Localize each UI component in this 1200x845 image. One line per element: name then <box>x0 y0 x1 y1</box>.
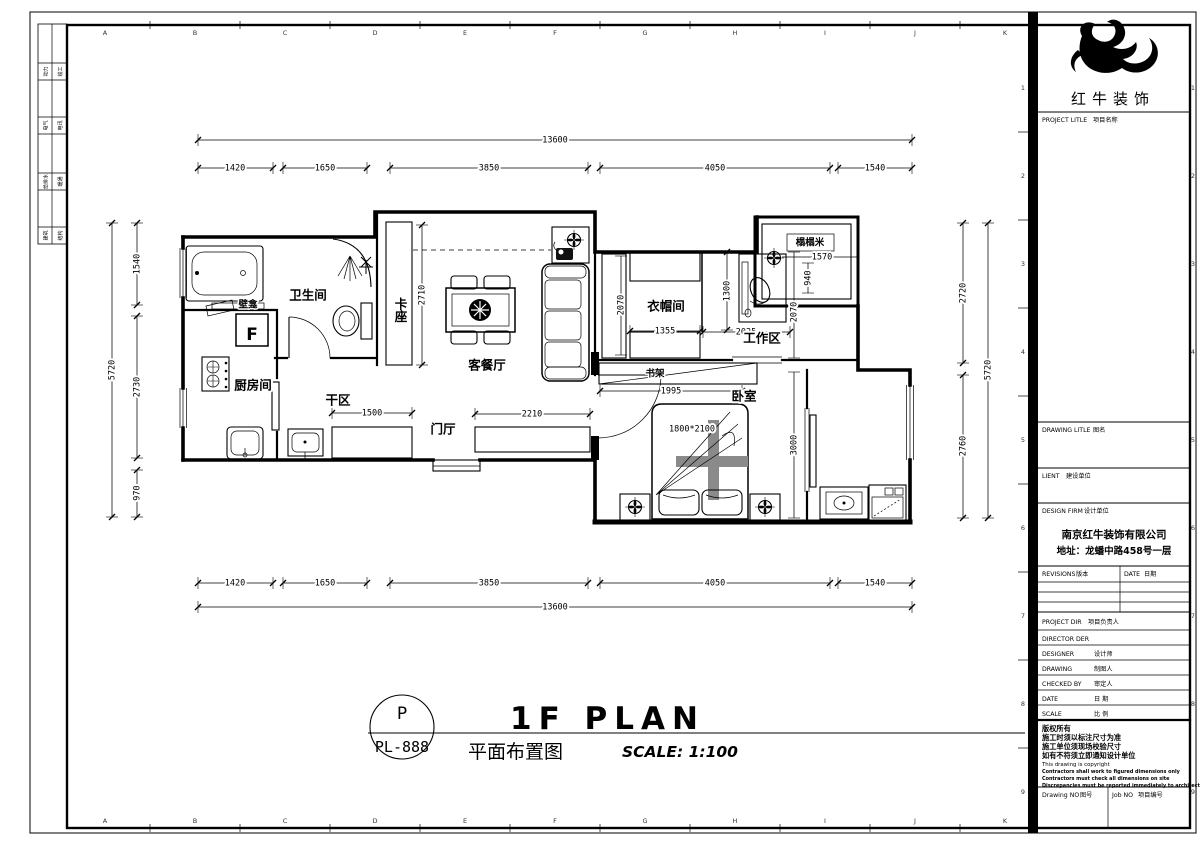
entry-threshold <box>433 460 480 471</box>
drawing-no-label-cn: 图号 <box>1080 792 1092 799</box>
svg-text:A: A <box>103 817 108 825</box>
nightstand-left <box>620 494 650 520</box>
title-bubble-code: PL-888 <box>375 738 429 756</box>
nightstand-right <box>750 494 780 520</box>
svg-text:G: G <box>642 817 647 825</box>
label-foyer: 门厅 <box>430 422 456 437</box>
svg-text:4: 4 <box>1191 348 1195 356</box>
rev-date-label: DATE <box>1124 571 1140 578</box>
av-equipment-box <box>552 227 589 263</box>
svg-text:1650: 1650 <box>315 164 335 174</box>
dim-right: 2720 2760 5720 <box>957 220 994 521</box>
svg-text:5720: 5720 <box>108 360 118 380</box>
tatami-walls <box>755 217 858 306</box>
svg-text:5: 5 <box>1021 436 1025 444</box>
svg-text:C: C <box>283 29 288 37</box>
kitchen-sink <box>227 427 263 459</box>
svg-text:D: D <box>372 29 377 37</box>
signoff-label: 给排水 <box>43 174 50 189</box>
dim-top-total: 13600 <box>195 134 915 146</box>
drawing-no-label: Drawing NO <box>1042 792 1079 799</box>
label-living-dining: 客餐厅 <box>467 358 506 373</box>
svg-text:E: E <box>463 817 467 825</box>
label-bookshelf: 书架 <box>645 368 665 380</box>
label-cloakroom: 衣帽间 <box>647 299 685 314</box>
svg-text:940: 940 <box>804 270 814 285</box>
svg-text:J: J <box>913 29 916 37</box>
director-label: DIRECTOR DER <box>1042 636 1090 643</box>
toilet <box>333 303 372 339</box>
firm-address: 地址：龙蟠中路458号一层 <box>1057 545 1172 557</box>
svg-text:2760: 2760 <box>959 436 969 456</box>
svg-text:1540: 1540 <box>865 164 885 174</box>
title-bubble-top: P <box>397 704 407 724</box>
svg-text:1650: 1650 <box>315 579 335 589</box>
ceiling-light-symbol <box>764 248 784 268</box>
svg-text:1540: 1540 <box>133 254 143 274</box>
signoff-label: 暖通 <box>57 176 64 186</box>
svg-text:版权所有: 版权所有 <box>1042 724 1071 733</box>
project-dir-label-cn: 项目负责人 <box>1088 618 1119 626</box>
svg-text:1420: 1420 <box>225 579 245 589</box>
dry-area-cabinet <box>332 427 412 458</box>
scale-label-cn: 比 例 <box>1094 710 1108 718</box>
svg-text:Contractors must check all dim: Contractors must check all dimensions on… <box>1042 776 1170 782</box>
label-booth: 卡座 <box>393 297 408 324</box>
shower <box>333 239 373 287</box>
balcony-basin <box>820 487 868 519</box>
signoff-label: 竣工 <box>57 66 64 76</box>
svg-text:E: E <box>463 29 467 37</box>
svg-text:3850: 3850 <box>479 579 499 589</box>
copyright-notes: 版权所有 施工时须以标注尺寸为准 施工单位须现场校验尺寸 如有不符须立即通知设计… <box>1041 724 1200 789</box>
svg-text:如有不符须立即通知设计单位: 如有不符须立即通知设计单位 <box>1042 751 1136 760</box>
svg-text:1995: 1995 <box>661 387 681 397</box>
svg-text:J: J <box>913 817 916 825</box>
svg-text:Discrepancies must be reported: Discrepancies must be reported immediate… <box>1042 783 1200 789</box>
svg-text:7: 7 <box>1191 612 1195 620</box>
drawing-label-cn: 制图人 <box>1094 665 1113 673</box>
window <box>180 388 187 428</box>
svg-text:F: F <box>553 29 557 37</box>
label-kitchen: 厨房间 <box>234 378 272 393</box>
svg-text:13600: 13600 <box>542 603 568 613</box>
signoff-label: 动力 <box>43 66 50 76</box>
label-work-area: 工作区 <box>743 331 781 346</box>
job-no-label: Job NO <box>1111 792 1133 799</box>
label-tatami: 榻榻米 <box>795 237 825 249</box>
project-title-label: PROJECT LITLE <box>1042 117 1087 124</box>
label-niche: 壁龛 <box>238 299 258 311</box>
svg-text:1355: 1355 <box>655 327 675 337</box>
label-dry-area: 干区 <box>325 393 351 408</box>
rev-date-label-cn: 日期 <box>1144 570 1156 578</box>
drawing-label: DRAWING <box>1042 666 1072 673</box>
sofa <box>542 264 589 381</box>
svg-text:6: 6 <box>1191 524 1195 532</box>
dining-set <box>446 276 515 344</box>
grid-numbers-left: 123456789 <box>1018 84 1028 796</box>
sliding-door-panel <box>810 415 816 487</box>
dimensions: 13600 1420 1650 3850 4050 1540 1420 1650… <box>106 134 994 613</box>
svg-text:1: 1 <box>1191 84 1195 92</box>
svg-text:B: B <box>193 29 197 37</box>
svg-text:3000: 3000 <box>790 435 800 455</box>
svg-text:2: 2 <box>1191 172 1195 180</box>
grid-letters-bottom: ABCDEFGHIJK <box>103 817 1008 832</box>
label-bed-size: 1800*2100 <box>669 425 715 435</box>
client-label: LIENT <box>1042 473 1060 480</box>
client-label-cn: 建设单位 <box>1066 472 1091 480</box>
signoff-label: 电气 <box>43 120 50 130</box>
dim-bottom-segments: 1420 1650 3850 4050 1540 <box>195 577 915 589</box>
signoff-label: 结构 <box>57 230 64 240</box>
svg-text:K: K <box>1003 817 1008 825</box>
drawing-title: P PL-888 1F PLAN 平面布置图 SCALE: 1:100 <box>368 695 1025 763</box>
designer-label-cn: 设计师 <box>1094 650 1113 658</box>
svg-text:2730: 2730 <box>133 377 143 397</box>
label-fridge: F <box>246 325 258 345</box>
svg-text:施工单位须现场校验尺寸: 施工单位须现场校验尺寸 <box>1042 742 1121 751</box>
svg-text:2070: 2070 <box>617 295 627 315</box>
fold-bar <box>1028 12 1038 833</box>
signoff-label: 建筑 <box>43 230 50 240</box>
svg-text:1420: 1420 <box>225 164 245 174</box>
firm-name: 南京红牛装饰有限公司 <box>1062 528 1167 541</box>
date-label-cn: 日 期 <box>1094 695 1108 703</box>
svg-text:3: 3 <box>1191 260 1195 268</box>
svg-text:6: 6 <box>1021 524 1025 532</box>
revisions-label-cn: 版本 <box>1076 570 1088 578</box>
svg-text:C: C <box>283 817 288 825</box>
svg-text:D: D <box>372 817 377 825</box>
dim-bottom-total: 13600 <box>195 601 915 613</box>
project-title-label-cn: 项目名称 <box>1093 116 1118 124</box>
fridge <box>206 300 268 346</box>
svg-text:9: 9 <box>1021 788 1025 796</box>
svg-text:5720: 5720 <box>984 360 994 380</box>
svg-text:K: K <box>1003 29 1008 37</box>
svg-text:G: G <box>642 29 647 37</box>
label-bedroom: 卧室 <box>731 389 757 404</box>
svg-text:2210: 2210 <box>522 410 542 420</box>
checked-label: CHECKED BY <box>1042 681 1082 688</box>
svg-text:970: 970 <box>133 485 143 500</box>
svg-text:13600: 13600 <box>542 136 568 146</box>
svg-text:4: 4 <box>1021 348 1025 356</box>
svg-text:2070: 2070 <box>790 302 800 322</box>
svg-text:7: 7 <box>1021 612 1025 620</box>
svg-text:F: F <box>553 817 557 825</box>
svg-text:3850: 3850 <box>479 164 499 174</box>
svg-text:2: 2 <box>1021 172 1025 180</box>
label-bathroom: 卫生间 <box>289 288 327 303</box>
brand-name: 红牛装饰 <box>1071 90 1155 108</box>
dim-top-segments: 1420 1650 3850 4050 1540 <box>195 162 915 174</box>
title-cn: 平面布置图 <box>468 741 563 763</box>
svg-text:3: 3 <box>1021 260 1025 268</box>
designer-label: DESIGNER <box>1042 651 1075 658</box>
svg-text:I: I <box>824 817 826 825</box>
window <box>907 385 914 460</box>
job-no-label-cn: 项目编号 <box>1138 791 1163 799</box>
svg-text:I: I <box>824 29 826 37</box>
grid-letters-top: ABCDEFGHIJK <box>103 21 1008 37</box>
svg-text:9: 9 <box>1191 788 1195 796</box>
bed <box>652 404 748 519</box>
washing-machine <box>869 485 906 521</box>
revisions-label: REVISIONS <box>1042 571 1076 578</box>
svg-text:8: 8 <box>1021 700 1025 708</box>
plan-walls <box>180 212 914 522</box>
svg-text:This drawing is copyright: This drawing is copyright <box>1041 762 1110 768</box>
kitchen-sliding-door <box>272 382 279 430</box>
bathtub <box>186 246 263 301</box>
svg-text:H: H <box>733 817 738 825</box>
svg-text:1500: 1500 <box>362 409 382 419</box>
title-main: 1F PLAN <box>510 701 705 737</box>
title-block: 红牛装饰 PROJECT LITLE 项目名称 DRAWING LITLE 图名… <box>1038 20 1200 828</box>
svg-text:4050: 4050 <box>705 164 725 174</box>
svg-text:A: A <box>103 29 108 37</box>
svg-text:1570: 1570 <box>812 253 832 263</box>
foyer-cabinet <box>475 427 590 452</box>
svg-text:8: 8 <box>1191 700 1195 708</box>
floor-plan-sheet: 动力 竣工 电气 电讯 给排水 暖通 建筑 结构 ABCDEFGHIJK ABC… <box>0 0 1200 845</box>
svg-text:2720: 2720 <box>959 283 969 303</box>
svg-text:1300: 1300 <box>723 281 733 301</box>
drawing-title-label: DRAWING LITLE <box>1042 427 1091 434</box>
dim-left: 5720 1540 2730 970 <box>106 220 143 520</box>
drawing-title-label-cn: 图名 <box>1093 426 1105 434</box>
svg-text:4050: 4050 <box>705 579 725 589</box>
grid-numbers-right: 123456789 <box>1191 84 1195 796</box>
checked-label-cn: 审定人 <box>1094 680 1113 688</box>
svg-text:施工时须以标注尺寸为准: 施工时须以标注尺寸为准 <box>1042 733 1121 742</box>
svg-text:B: B <box>193 817 197 825</box>
signoff-table: 动力 竣工 电气 电讯 给排水 暖通 建筑 结构 <box>38 24 67 244</box>
svg-text:1540: 1540 <box>865 579 885 589</box>
design-firm-label-cn: 设计单位 <box>1084 507 1109 515</box>
fixtures <box>186 222 906 521</box>
stove <box>202 357 229 391</box>
svg-text:1: 1 <box>1021 84 1025 92</box>
dry-area-basin <box>288 429 323 459</box>
bathroom-door <box>289 317 330 358</box>
svg-text:H: H <box>733 29 738 37</box>
svg-text:5: 5 <box>1191 436 1195 444</box>
title-scale: SCALE: 1:100 <box>622 743 738 761</box>
date-label: DATE <box>1042 696 1058 703</box>
signoff-label: 电讯 <box>57 120 64 130</box>
svg-text:Contractors shall work to figu: Contractors shall work to figured dimens… <box>1042 769 1181 775</box>
scale-label: SCALE <box>1042 711 1062 718</box>
design-firm-label: DESIGN FIRM <box>1042 508 1083 515</box>
project-dir-label: PROJECT DIR <box>1042 619 1082 626</box>
brand-logo <box>1071 20 1158 73</box>
bookshelf <box>599 363 757 384</box>
svg-text:2710: 2710 <box>418 285 428 305</box>
